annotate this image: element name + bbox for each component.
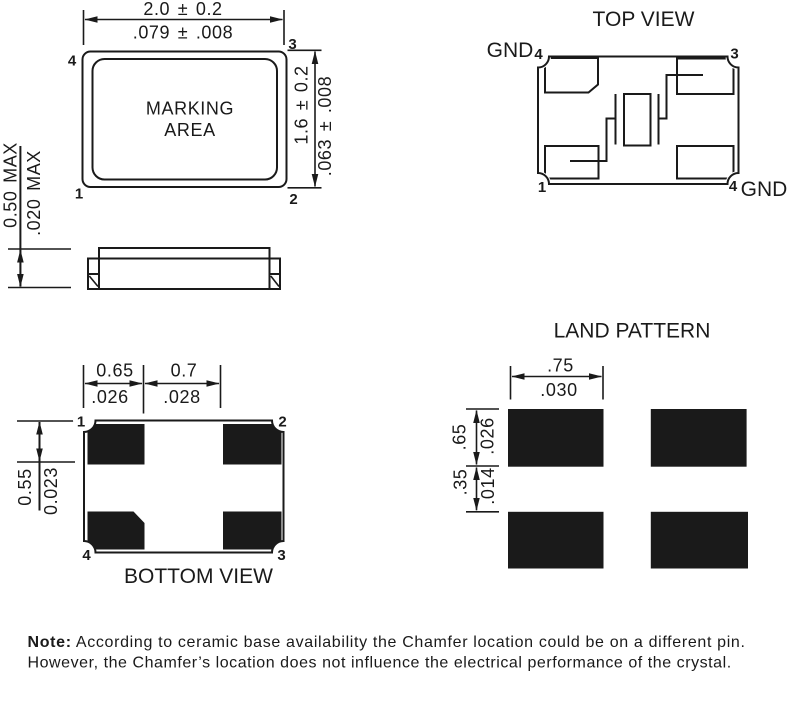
svg-text:AREA: AREA (164, 120, 215, 140)
svg-text:0.7: 0.7 (171, 361, 198, 381)
svg-text:.65: .65 (450, 424, 470, 451)
svg-text:4: 4 (82, 547, 91, 564)
svg-text:.014: .014 (478, 467, 498, 504)
svg-text:2: 2 (278, 414, 286, 431)
svg-text:MARKING: MARKING (146, 99, 234, 119)
svg-text:Note: According to ceramic bas: Note: According to ceramic base availabi… (28, 634, 746, 651)
svg-text:4: 4 (534, 46, 543, 63)
svg-text:GND: GND (487, 39, 534, 62)
svg-text:.35: .35 (451, 469, 471, 496)
svg-text:.028: .028 (163, 387, 200, 407)
svg-text:.079 ± .008: .079 ± .008 (133, 23, 234, 43)
svg-text:TOP VIEW: TOP VIEW (593, 8, 695, 31)
svg-text:2.0 ± 0.2: 2.0 ± 0.2 (143, 0, 222, 19)
svg-text:.020 MAX: .020 MAX (24, 150, 44, 236)
svg-text:4: 4 (729, 178, 738, 195)
svg-text:0.023: 0.023 (41, 467, 61, 515)
svg-text:.75: .75 (547, 356, 574, 376)
svg-text:However, the Chamfer’s locatio: However, the Chamfer’s location does not… (28, 655, 732, 672)
svg-text:3: 3 (277, 547, 285, 564)
svg-text:LAND PATTERN: LAND PATTERN (554, 320, 711, 343)
svg-text:0.65: 0.65 (96, 361, 133, 381)
svg-text:2: 2 (289, 191, 297, 208)
svg-text:0.50 MAX: 0.50 MAX (1, 142, 21, 228)
svg-text:0.55: 0.55 (15, 468, 35, 505)
svg-text:.026: .026 (478, 417, 498, 454)
svg-text:1: 1 (77, 414, 85, 431)
svg-text:1: 1 (75, 186, 83, 203)
svg-text:GND: GND (741, 178, 788, 201)
svg-text:.026: .026 (91, 387, 128, 407)
svg-text:.030: .030 (540, 380, 577, 400)
svg-text:4: 4 (68, 53, 77, 70)
svg-text:3: 3 (730, 46, 738, 63)
svg-text:1.6 ± 0.2: 1.6 ± 0.2 (292, 65, 312, 144)
svg-text:BOTTOM VIEW: BOTTOM VIEW (124, 565, 273, 588)
svg-text:.063 ± .008: .063 ± .008 (315, 76, 335, 177)
svg-text:1: 1 (538, 179, 546, 196)
